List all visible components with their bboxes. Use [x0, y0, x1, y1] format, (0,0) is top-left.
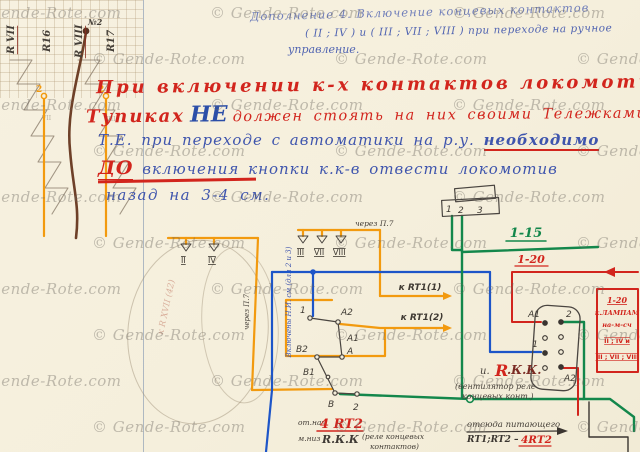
- relay-pin-2: 2: [458, 206, 464, 216]
- red-arrow-head: [604, 267, 615, 277]
- contact-label-iii: III: [297, 248, 304, 257]
- bottom-left-note2: контактов): [370, 442, 419, 451]
- label-r-vii: R VII: [6, 25, 17, 55]
- contact-triangles-group1: [181, 244, 219, 251]
- wire-label-1-20: 1-20: [517, 253, 545, 266]
- faint-pencil-note: к R XVII (42): [155, 279, 177, 336]
- warning-line5: назад на 3-4 см.: [106, 186, 270, 204]
- red-box-line5: III ; VII ; VIII: [596, 353, 639, 361]
- warning-line2-post: должен стоять на них своими Тележками.: [233, 106, 640, 126]
- red-box-line3: на-м-сч: [602, 321, 632, 329]
- warning-ne-word: НЕ: [190, 101, 228, 127]
- blue-junction-dot: [310, 269, 316, 275]
- orange-bus-group2: [286, 230, 446, 356]
- bottom-left-small2: м.низ: [298, 434, 320, 443]
- switch-label-b: B: [328, 400, 334, 410]
- scanned-schematic-page: Дополнение 4. Включение концевых контакт…: [0, 0, 640, 452]
- switch-label-b2: B2: [296, 345, 308, 355]
- connector-label-1: 1: [532, 340, 538, 350]
- rkk-note2: концевых конт.): [462, 392, 534, 401]
- header-note-line3: управление.: [288, 43, 359, 56]
- arrow-label-rt1-2: к RT1(2): [401, 313, 444, 323]
- relay-pin-3: 3: [477, 206, 483, 216]
- warning-line3: Т.Е. при переходе с автоматики на р.у. н…: [98, 131, 599, 149]
- switch-label-2: 2: [353, 403, 359, 413]
- bottom-right-arrow-line: [467, 431, 560, 432]
- bottom-right-arrow-head: [557, 427, 568, 435]
- label-via-p7-vertical: через П.7: [243, 293, 251, 329]
- warning-do-word: ДО: [98, 157, 133, 182]
- warning-line3-underlined: необходимо: [484, 131, 600, 151]
- relay-pin-1: 1: [446, 205, 452, 215]
- red-box-line1: 1-20: [607, 295, 627, 305]
- rkk-note1: (вентилятор реле: [455, 382, 536, 391]
- arrow-label-rt1-1: к RT1(1): [399, 283, 442, 293]
- warning-line4: ДО включения кнопки к.к-в отвести локомо…: [98, 157, 558, 179]
- pencil-mark-vii: VII: [41, 115, 52, 122]
- rkk-kk: .К.К.: [507, 363, 541, 377]
- switch-label-1: 1: [300, 306, 306, 316]
- contact-label-viii: VIII: [333, 248, 346, 257]
- label-r16: R16: [42, 30, 53, 53]
- warning-line2-pre: Тупиках: [86, 106, 185, 128]
- label-via-p7: через П.7: [355, 219, 394, 228]
- connector-label-2: 2: [566, 310, 572, 320]
- contact-label-vii: VII: [314, 248, 324, 257]
- red-box-line4: II ; IV и: [604, 337, 630, 345]
- bottom-right-line1: отсюда питающего: [467, 420, 560, 430]
- bottom-right-4rt2: 4RT2: [521, 434, 552, 446]
- connector-label-a2: A2: [563, 374, 576, 384]
- faint-pencil-sketch: [119, 233, 284, 431]
- connector-label-a1: A1: [527, 310, 540, 320]
- rkk-prefix: и.: [480, 366, 490, 377]
- switch-label-b1: B1: [303, 368, 315, 378]
- schematic-svg: R VII R16 R VIII №2 R17 VII VIII 2 2 к R…: [0, 0, 640, 452]
- bottom-left-note1: (реле концевых: [362, 432, 425, 441]
- switch-label-a1: A1: [346, 334, 359, 344]
- label-blue-note-vertical: Включены Н.И. см (для 2 и 3): [285, 246, 293, 358]
- connector-pins: [543, 320, 564, 371]
- brown-wire: [69, 32, 86, 238]
- orange-terminal-2-left: 2: [36, 85, 42, 95]
- switch-label-a2: A2: [340, 308, 353, 318]
- bottom-left-rkk: R.К.К: [321, 433, 360, 446]
- arrow-rt1-2-head: [443, 324, 452, 332]
- contact-label-ii: II: [181, 256, 186, 265]
- arrow-rt1-1-head: [443, 292, 452, 300]
- bottom-left-4rt2: 4 RT2: [320, 417, 363, 432]
- contact-label-iv: IV: [208, 256, 216, 265]
- warning-line4-post: включения кнопки к.к-в отвести локомотив: [142, 160, 558, 178]
- switch-label-a: A: [346, 347, 353, 357]
- label-no2: №2: [87, 17, 103, 27]
- bottom-right-line2: RT1;RT2 –: [466, 435, 519, 445]
- warning-line3-pre: Т.Е. при переходе с автоматики на р.у.: [98, 131, 484, 149]
- label-r17: R17: [106, 30, 117, 53]
- wire-label-1-15: 1-15: [510, 226, 543, 241]
- red-box-line2: к.ЛАМПАМ: [595, 309, 640, 317]
- warning-line2: Тупиках НЕ должен стоять на них своими Т…: [86, 98, 640, 129]
- label-r-viii: R VIII: [74, 24, 85, 59]
